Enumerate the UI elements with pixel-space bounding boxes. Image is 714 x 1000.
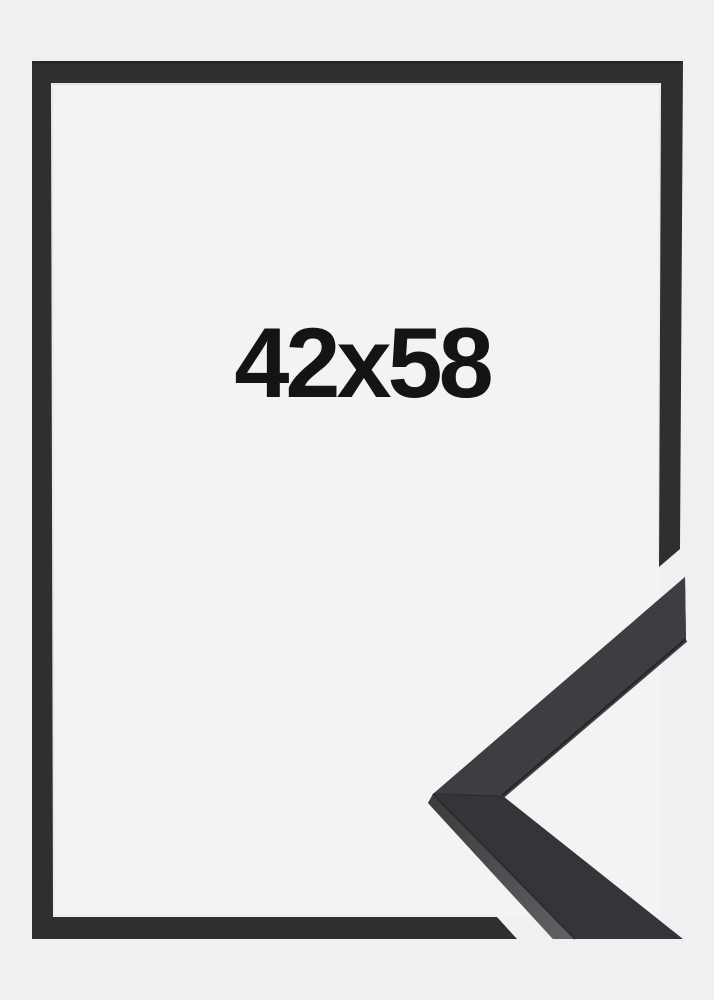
- frame-opening: [51, 83, 661, 917]
- frame-photo-canvas: 42x58: [0, 0, 714, 1000]
- size-label: 42x58: [234, 307, 491, 418]
- product-photo-frame: 42x58: [0, 0, 714, 1000]
